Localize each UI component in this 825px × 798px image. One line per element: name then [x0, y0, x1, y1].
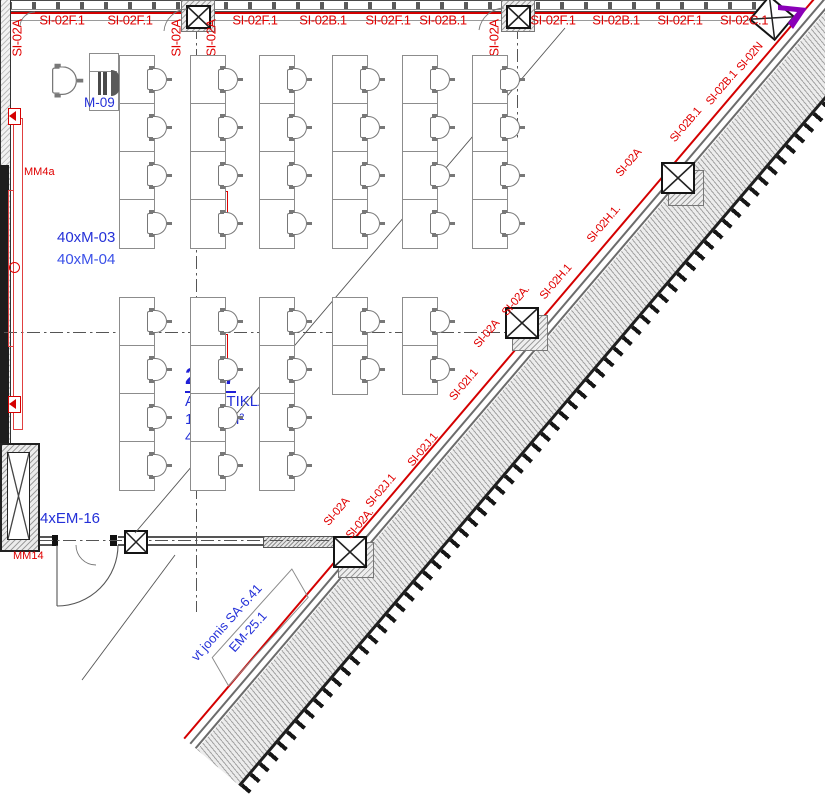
- bottom-wall-stub-top: [40, 536, 52, 538]
- door-swing-small: [76, 545, 96, 565]
- circuit-label: SI-02F.1: [657, 13, 702, 28]
- chair-icon: [287, 405, 311, 429]
- shaft: [0, 443, 40, 552]
- chair-icon: [360, 163, 384, 187]
- chair-icon: [287, 67, 311, 91]
- chair-icon: [287, 163, 311, 187]
- chair-icon: [218, 405, 242, 429]
- chair-icon: [360, 67, 384, 91]
- chair-seat: [224, 164, 238, 187]
- teacher-station-label: M-09: [84, 95, 115, 110]
- chair-seat: [153, 454, 167, 477]
- chair-seat: [506, 212, 520, 235]
- chair-icon: [500, 115, 524, 139]
- circuit-label: SI-02F.1: [365, 13, 410, 28]
- chair-icon: [430, 67, 454, 91]
- chair-seat: [436, 358, 450, 381]
- chair-seat: [436, 116, 450, 139]
- top-wall-inner-line: [8, 9, 772, 10]
- shaft-device-label: MM14: [13, 550, 44, 562]
- circuit-label-vertical: SI-02A: [10, 19, 25, 56]
- chair-icon: [218, 211, 242, 235]
- chair-icon: [500, 211, 524, 235]
- chair-seat: [436, 164, 450, 187]
- chair-seat: [366, 358, 380, 381]
- circuit-label-vertical: SI-02A: [487, 19, 502, 56]
- chair-seat: [293, 116, 307, 139]
- monitor-icon: [103, 72, 107, 95]
- bottom-wall-centerline: [40, 540, 348, 541]
- circuit-label-diagonal: SI-02A: [472, 318, 502, 351]
- chair-icon: [430, 163, 454, 187]
- chair-seat: [436, 68, 450, 91]
- chair-seat: [293, 310, 307, 333]
- circuit-label: SI-02B.1: [592, 13, 639, 28]
- chair-seat: [506, 116, 520, 139]
- monitor-icon: [98, 72, 101, 95]
- desk-group-a-label: 40xM-03: [57, 229, 115, 246]
- chair-icon: [500, 163, 524, 187]
- column-marker: [124, 530, 148, 554]
- left-wall-device-label: MM4a: [24, 166, 55, 178]
- chair-seat: [366, 310, 380, 333]
- cable-tray: [13, 118, 23, 430]
- floor-plan-canvas: { "room": {"number": "2017", "name": "AR…: [0, 0, 825, 697]
- chair-seat: [366, 212, 380, 235]
- chair-icon: [360, 357, 384, 381]
- chair-icon: [147, 67, 171, 91]
- shaft-inner: [7, 452, 30, 540]
- speaker-icon: [8, 108, 21, 125]
- junction-circle: [9, 262, 20, 273]
- chair-icon: [287, 309, 311, 333]
- column-marker: [506, 5, 531, 29]
- chair-seat: [293, 454, 307, 477]
- chair-seat: [366, 68, 380, 91]
- chair-seat: [293, 164, 307, 187]
- shaft-x-mark: [8, 453, 29, 539]
- circuit-label: SI-02F.1: [232, 13, 277, 28]
- chair-seat: [224, 310, 238, 333]
- chair-icon: [147, 309, 171, 333]
- chair-seat: [293, 212, 307, 235]
- chair-seat: [436, 310, 450, 333]
- chair-icon: [430, 211, 454, 235]
- top-wall: [8, 0, 772, 12]
- chair-seat: [153, 212, 167, 235]
- chair-icon: [430, 309, 454, 333]
- construction-line: [82, 555, 175, 680]
- chair-icon: [360, 309, 384, 333]
- chair-icon: [360, 211, 384, 235]
- chair-icon: [287, 357, 311, 381]
- chair-seat: [224, 212, 238, 235]
- chair-seat: [293, 406, 307, 429]
- speaker-icon: [8, 396, 21, 413]
- column-marker: [661, 162, 695, 194]
- chair-seat: [224, 406, 238, 429]
- circuit-label-vertical: SI-02A: [204, 19, 219, 56]
- chair-seat: [153, 358, 167, 381]
- chair-icon: [430, 115, 454, 139]
- chair-icon: [218, 453, 242, 477]
- circuit-label: SI-02B.1: [299, 13, 346, 28]
- chair-icon: [287, 453, 311, 477]
- chair-icon: [500, 67, 524, 91]
- chair-seat: [224, 116, 238, 139]
- chair-icon: [360, 115, 384, 139]
- chair-seat: [153, 406, 167, 429]
- chair-icon: [218, 309, 242, 333]
- chair-seat: [224, 358, 238, 381]
- desk-group-b-label: 40xM-04: [57, 251, 115, 268]
- chair-icon: [147, 115, 171, 139]
- chair-icon: [52, 65, 82, 95]
- circuit-label: SI-02F.1: [530, 13, 575, 28]
- chair-seat: [293, 68, 307, 91]
- chair-seat: [153, 310, 167, 333]
- chair-icon: [147, 405, 171, 429]
- exit-device-label: 4xEM-16: [40, 510, 100, 527]
- chair-seat: [153, 68, 167, 91]
- chair-seat: [436, 212, 450, 235]
- circuit-label: SI-02F.1: [39, 13, 84, 28]
- chair-icon: [218, 357, 242, 381]
- chair-icon: [287, 211, 311, 235]
- chair-seat: [153, 116, 167, 139]
- circuit-label-diagonal: SI-02A: [614, 147, 644, 180]
- chair-icon: [218, 163, 242, 187]
- chair-icon: [430, 357, 454, 381]
- chair-seat: [506, 68, 520, 91]
- chair-icon: [147, 453, 171, 477]
- chair-seat: [506, 164, 520, 187]
- bottom-wall-hatch-segment: [263, 536, 338, 548]
- chair-seat: [224, 454, 238, 477]
- chair-icon: [147, 357, 171, 381]
- chair-seat: [366, 116, 380, 139]
- circuit-label-vertical: SI-02A: [169, 19, 184, 56]
- chair-seat: [224, 68, 238, 91]
- circuit-label: SI-02B.1: [419, 13, 466, 28]
- chair-icon: [218, 115, 242, 139]
- chair-seat: [366, 164, 380, 187]
- chair-icon: [218, 67, 242, 91]
- chair-seat: [153, 164, 167, 187]
- circuit-label: SI-02F.1: [107, 13, 152, 28]
- chair-icon: [147, 163, 171, 187]
- door-swing: [57, 545, 118, 606]
- circuit-label-diagonal: SI-02A: [322, 496, 352, 529]
- circuit-label: SI-02C.1: [720, 13, 768, 28]
- chair-seat: [293, 358, 307, 381]
- chair-icon: [147, 211, 171, 235]
- column-marker: [333, 536, 367, 568]
- chair-icon: [287, 115, 311, 139]
- bottom-wall-stub-bottom: [40, 544, 52, 546]
